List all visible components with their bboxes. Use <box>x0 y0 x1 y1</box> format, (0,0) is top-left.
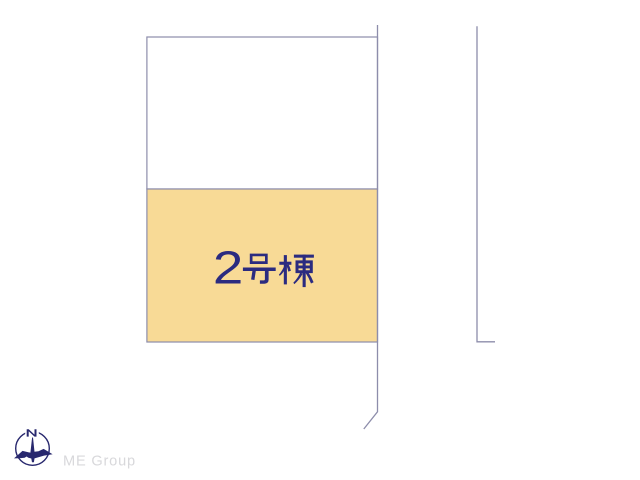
svg-text:2: 2 <box>213 242 243 294</box>
svg-text:ME Group: ME Group <box>63 453 136 469</box>
